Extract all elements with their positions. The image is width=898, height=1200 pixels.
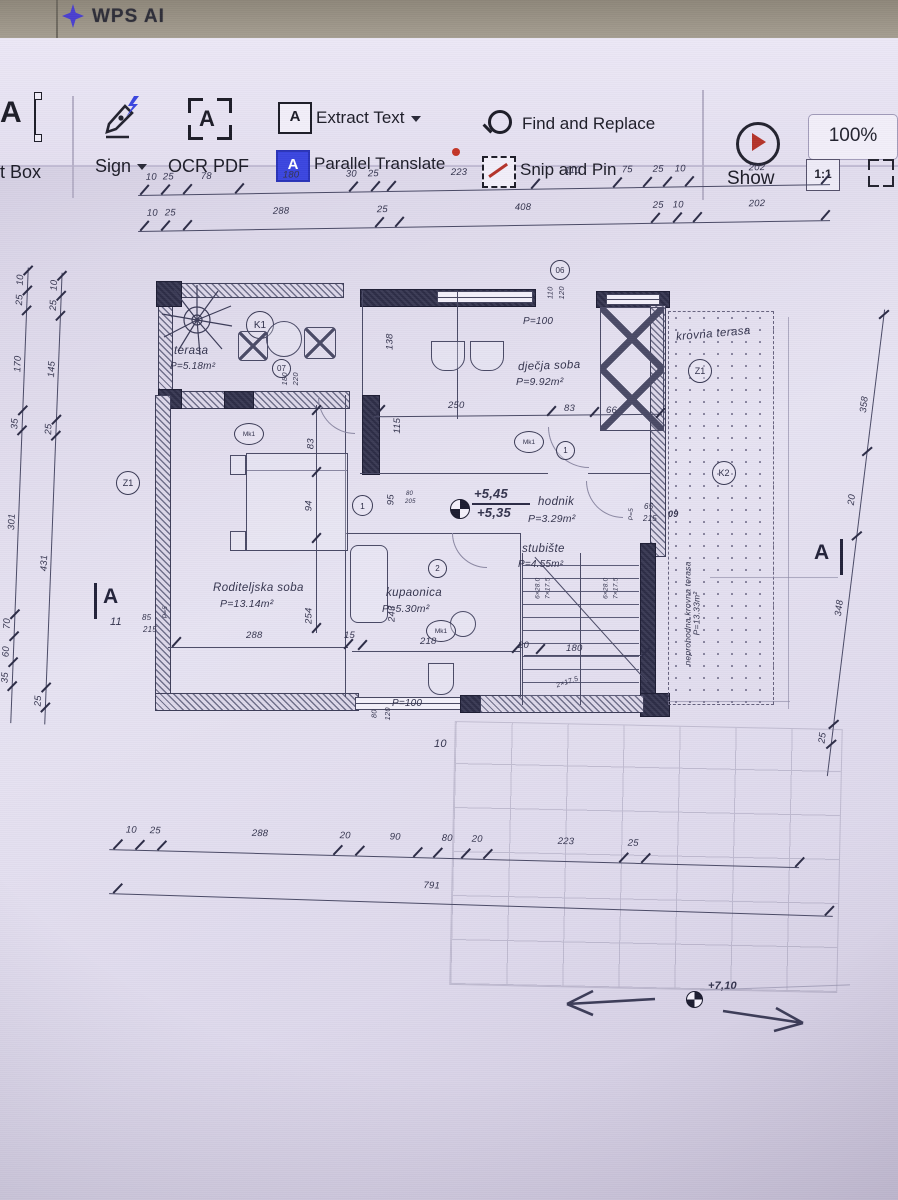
dim-tick (113, 883, 123, 894)
wall (155, 693, 359, 711)
grid-label: 09 (668, 510, 678, 519)
dim-label: 30 (346, 170, 357, 180)
direction-arrows (555, 973, 817, 1037)
dim-label: 35 (1, 672, 11, 683)
dim-tick (161, 220, 171, 231)
dim-label: 25 (15, 294, 25, 305)
dim-label: 288 (252, 829, 269, 839)
dim-line (44, 273, 63, 725)
wps-ai-title: WPS AI (92, 6, 165, 28)
dim-label: 301 (7, 513, 17, 530)
toilet (428, 663, 454, 695)
dim-tick (483, 849, 493, 860)
stair-center-line (580, 553, 581, 705)
dim-tick (135, 839, 145, 850)
partition-line (360, 473, 548, 474)
dim-label: 20 (518, 641, 529, 651)
dim-label: 78 (201, 172, 212, 182)
marker-circle: 1 (352, 495, 373, 516)
dim-label: 95 (387, 494, 397, 505)
dim-label: 10 (146, 173, 157, 183)
dim-line (138, 220, 830, 232)
grid-label: 10 (434, 739, 447, 750)
pdf-floor-plan-canvas[interactable]: 10 25 78 180 30 25 223 110 75 25 10 202 … (0, 165, 898, 1200)
dim-tick (182, 220, 192, 231)
extract-text-button[interactable]: Extract Text (316, 108, 421, 128)
dim-tick (530, 178, 540, 189)
ocr-pdf-icon[interactable]: A (188, 98, 232, 140)
dim-label: 10 (16, 274, 26, 285)
dim-label: 60 (2, 646, 12, 657)
dim-tick (234, 183, 244, 194)
handle-square (34, 92, 42, 100)
nightstand (230, 531, 246, 551)
opening-label: P=5 (163, 606, 170, 618)
room-name: stubište (522, 544, 565, 556)
wall (362, 395, 380, 475)
grid-label: 11 (110, 617, 122, 628)
bracket-corner (217, 98, 232, 113)
opening-label: 120 (558, 286, 566, 299)
dim-label: 180 (283, 170, 300, 180)
text-box-icon[interactable]: A (0, 96, 38, 144)
dim-label: 254 (304, 608, 314, 624)
dim-line (168, 647, 348, 648)
dim-label: 83 (307, 438, 317, 449)
dim-tick (820, 210, 830, 221)
dim-label: 288 (273, 207, 290, 217)
ocr-glyph: A (199, 106, 215, 132)
door-swing-arc (586, 481, 623, 518)
toolbar: A t Box Sign A OCR PDF A Extract Text A … (0, 38, 898, 167)
opening-label: P=100 (523, 317, 553, 327)
door-swing-arc (318, 397, 355, 434)
stair-text: 6×28.0 (535, 578, 542, 599)
room-name: dječja soba (518, 360, 581, 374)
dim-tick (374, 217, 384, 228)
section-mark-bar (840, 539, 843, 575)
chair (304, 327, 336, 359)
dim-tick (157, 840, 167, 851)
extract-text-icon[interactable]: A (278, 102, 312, 134)
marker-circle: Z1 (688, 359, 712, 383)
dim-label: 90 (390, 832, 401, 842)
dim-label: 348 (834, 599, 845, 616)
dim-label: 75 (622, 165, 633, 175)
chevron-down-icon (411, 116, 421, 122)
text-cursor-bar (34, 96, 37, 136)
dim-tick (333, 845, 343, 856)
search-icon[interactable] (488, 110, 512, 134)
dim-label: 202 (749, 199, 766, 209)
dim-label: 35 (10, 418, 20, 429)
wall-column (224, 391, 254, 409)
room-name: terasa (174, 346, 208, 358)
dim-label: 80 (442, 834, 453, 844)
notification-dot (452, 148, 460, 156)
handle-square (34, 134, 42, 142)
dim-tick (348, 181, 358, 192)
dim-tick (684, 176, 694, 187)
dim-label: 70 (3, 618, 13, 629)
dim-tick (182, 184, 192, 195)
terrace-edge-line (788, 317, 789, 709)
dim-label: 223 (451, 168, 468, 178)
dim-label: 20 (847, 494, 858, 506)
opening-label: 85 (142, 614, 151, 622)
dim-tick (140, 184, 150, 195)
dim-label: 25 (44, 423, 54, 434)
dim-label: 80 (406, 491, 413, 497)
dim-line (109, 893, 833, 917)
dim-label: 25 (628, 839, 639, 849)
bed-line (247, 470, 347, 471)
dim-label: 10 (50, 280, 60, 291)
stair-text: 6×28.0 (603, 578, 610, 599)
dim-label: 25 (34, 695, 44, 706)
elevation-marker (450, 499, 470, 519)
dim-tick (171, 637, 181, 648)
dim-tick (113, 839, 123, 850)
section-mark-bar (94, 583, 97, 619)
dim-tick (140, 220, 150, 231)
opening-label: 120 (384, 707, 392, 720)
dim-label: 25 (377, 205, 388, 215)
wall (155, 395, 171, 711)
dim-label: 25 (368, 169, 379, 179)
dim-tick (650, 212, 660, 223)
bed (246, 453, 348, 551)
opening-label: P=5 (629, 508, 636, 520)
dim-tick (394, 216, 404, 227)
marker-circle: 06 (550, 260, 570, 280)
staircase (522, 553, 639, 705)
level-label: +5,35 (477, 506, 511, 519)
dim-label: 10 (675, 164, 686, 174)
dim-label: 25 (150, 826, 161, 836)
marker-circle: 1 (556, 441, 575, 460)
extract-glyph: A (290, 108, 301, 125)
dim-label: 288 (246, 631, 262, 641)
dim-tick (662, 176, 672, 187)
zoom-level-field[interactable]: 100% (808, 114, 898, 160)
table (266, 321, 302, 357)
room-area: P=9.92m² (516, 377, 563, 388)
room-area: P=4.55m² (518, 560, 563, 570)
dim-tick (370, 181, 380, 192)
opening-label: 220 (292, 372, 300, 385)
dim-tick (641, 853, 651, 864)
dim-tick (692, 212, 702, 223)
dim-tick (589, 407, 599, 418)
dim-tick (642, 176, 652, 187)
level-label: +5,45 (474, 487, 508, 500)
dim-tick (672, 212, 682, 223)
dim-label: 205 (405, 499, 416, 505)
dim-tick (413, 847, 423, 858)
room-name: hodnik (538, 497, 574, 509)
dim-label: 20 (472, 835, 483, 845)
partition-line (520, 533, 521, 697)
opening-label: 110 (547, 286, 555, 299)
dim-label: 223 (558, 837, 575, 847)
room-name: Roditeljska soba (213, 583, 304, 595)
opening-label: 180 (281, 372, 289, 385)
dim-line (352, 651, 520, 652)
dim-label: 10 (126, 826, 137, 836)
dim-label: 83 (564, 404, 575, 414)
window (606, 294, 660, 305)
room-label-vertical: neprohodna krovna terasa P=13.33m² (684, 534, 701, 694)
room-area: P=13.14m² (220, 599, 273, 610)
window (437, 291, 533, 303)
partition-line (588, 473, 650, 474)
dim-label: 243 (387, 606, 397, 622)
partition-line (345, 533, 521, 534)
dim-label: 66 (606, 406, 617, 416)
dim-tick (795, 857, 805, 868)
marker-circle: Z1 (116, 471, 140, 495)
stair-text: 7×17.5 (545, 578, 552, 599)
window-titlebar: WPS AI (0, 0, 898, 38)
dim-tick (461, 848, 471, 859)
dim-line (316, 405, 317, 633)
marker-circle: Mk1 (514, 431, 544, 453)
dim-label: 791 (423, 881, 440, 891)
wall-column (640, 693, 670, 717)
dim-label: 10 (147, 209, 158, 219)
marker-circle: K2 (712, 461, 736, 485)
dim-label: 218 (420, 637, 436, 647)
chair (238, 331, 268, 361)
dim-tick (161, 184, 171, 195)
section-line (710, 577, 838, 578)
dim-line (827, 309, 885, 776)
wps-ai-spark-icon (62, 4, 84, 28)
dim-tick (612, 177, 622, 188)
dim-tick (824, 905, 834, 916)
dim-col-left: 10 25 170 35 301 70 60 35 10 25 145 25 4… (0, 261, 80, 733)
wall (640, 543, 656, 715)
opening-label: 215 (143, 626, 157, 634)
opening-label: 80 (371, 709, 379, 718)
section-mark-a: A (103, 585, 118, 609)
room-name: kupaonica (386, 588, 442, 600)
dim-label: 202 (749, 163, 766, 173)
dim-label: 110 (565, 166, 581, 176)
opening-label: 65 (644, 503, 653, 511)
dim-tick (820, 174, 830, 185)
stair-walk-line (534, 557, 647, 683)
dim-label: 25 (49, 300, 59, 311)
dim-label: 180 (566, 644, 582, 654)
dim-label: 15 (344, 631, 355, 641)
dim-label: 25 (165, 208, 176, 218)
dim-line (10, 267, 29, 723)
dim-tick (433, 847, 443, 858)
sign-pen-icon[interactable] (98, 94, 144, 142)
dim-label: 358 (859, 396, 870, 413)
dim-tick (355, 845, 365, 856)
dim-label: 115 (393, 418, 403, 434)
opening-label: P=100 (392, 699, 422, 709)
dim-label: 25 (163, 172, 174, 182)
dim-label: 408 (515, 203, 532, 213)
marker-circle: 2 (428, 559, 447, 578)
marker-circle: Mk1 (234, 423, 264, 445)
dim-label: 250 (448, 401, 464, 411)
elevation-marker (686, 991, 703, 1008)
dim-label: 145 (47, 361, 57, 378)
room-area: P=5.18m² (170, 362, 215, 372)
dim-label: 25 (653, 165, 664, 175)
find-replace-button[interactable]: Find and Replace (522, 114, 655, 134)
dim-label: 431 (40, 555, 50, 572)
section-mark-a: A (814, 541, 829, 565)
stair-text: 7×17.5 (613, 578, 620, 599)
room-area: P=13.33m² (692, 534, 701, 694)
dim-tick (386, 180, 396, 191)
nightstand (230, 455, 246, 475)
dim-label: 20 (340, 831, 351, 841)
opening-label: 215 (643, 515, 657, 523)
dim-label: 10 (673, 200, 684, 210)
dim-label: 94 (305, 500, 315, 511)
door-swing-arc (452, 533, 487, 568)
dim-label: 138 (385, 334, 395, 350)
text-box-glyph: A (0, 96, 22, 129)
dim-tick (357, 640, 367, 651)
sink (470, 341, 504, 371)
bracket-corner (217, 125, 232, 140)
dim-label: 170 (13, 356, 23, 373)
dim-line (109, 849, 799, 868)
sink (431, 341, 465, 371)
dim-line (524, 655, 644, 656)
show-play-icon[interactable] (736, 122, 780, 166)
room-area: P=3.29m² (528, 514, 575, 525)
partition-line (362, 291, 363, 395)
dim-label: 25 (653, 201, 664, 211)
dim-tick (619, 852, 629, 863)
titlebar-divider (56, 0, 58, 38)
